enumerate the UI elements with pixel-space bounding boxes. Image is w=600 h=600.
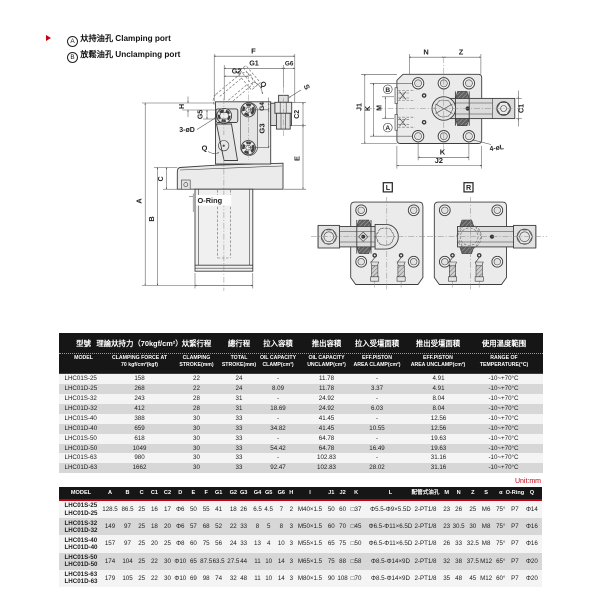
svg-text:Z: Z bbox=[459, 47, 464, 56]
svg-text:C: C bbox=[158, 176, 165, 181]
svg-text:K: K bbox=[365, 106, 372, 111]
svg-text:B: B bbox=[385, 87, 390, 94]
svg-text:Q: Q bbox=[258, 79, 269, 89]
svg-text:B: B bbox=[147, 216, 156, 221]
svg-text:G2: G2 bbox=[232, 66, 242, 75]
svg-text:N: N bbox=[423, 47, 428, 56]
svg-text:R: R bbox=[466, 183, 472, 192]
svg-text:G5: G5 bbox=[198, 110, 205, 119]
svg-text:L: L bbox=[386, 183, 391, 192]
svg-text:A: A bbox=[385, 125, 390, 132]
svg-text:F: F bbox=[251, 47, 256, 56]
svg-text:M: M bbox=[376, 105, 383, 111]
svg-text:4-øL: 4-øL bbox=[489, 144, 504, 153]
svg-text:J2: J2 bbox=[435, 156, 443, 165]
svg-text:G6: G6 bbox=[285, 61, 294, 68]
svg-text:Q: Q bbox=[202, 144, 208, 153]
svg-text:E: E bbox=[292, 156, 301, 161]
svg-text:C2: C2 bbox=[294, 110, 301, 119]
svg-text:S: S bbox=[302, 83, 312, 91]
svg-text:G1: G1 bbox=[249, 59, 259, 68]
svg-text:O-Ring: O-Ring bbox=[198, 196, 223, 205]
svg-text:G4: G4 bbox=[259, 102, 266, 111]
svg-text:3-øD: 3-øD bbox=[179, 127, 195, 134]
svg-text:G3: G3 bbox=[258, 123, 267, 133]
svg-text:A: A bbox=[135, 198, 144, 204]
svg-text:C1: C1 bbox=[518, 104, 525, 113]
svg-text:J1: J1 bbox=[357, 103, 364, 111]
svg-text:H: H bbox=[179, 104, 186, 109]
